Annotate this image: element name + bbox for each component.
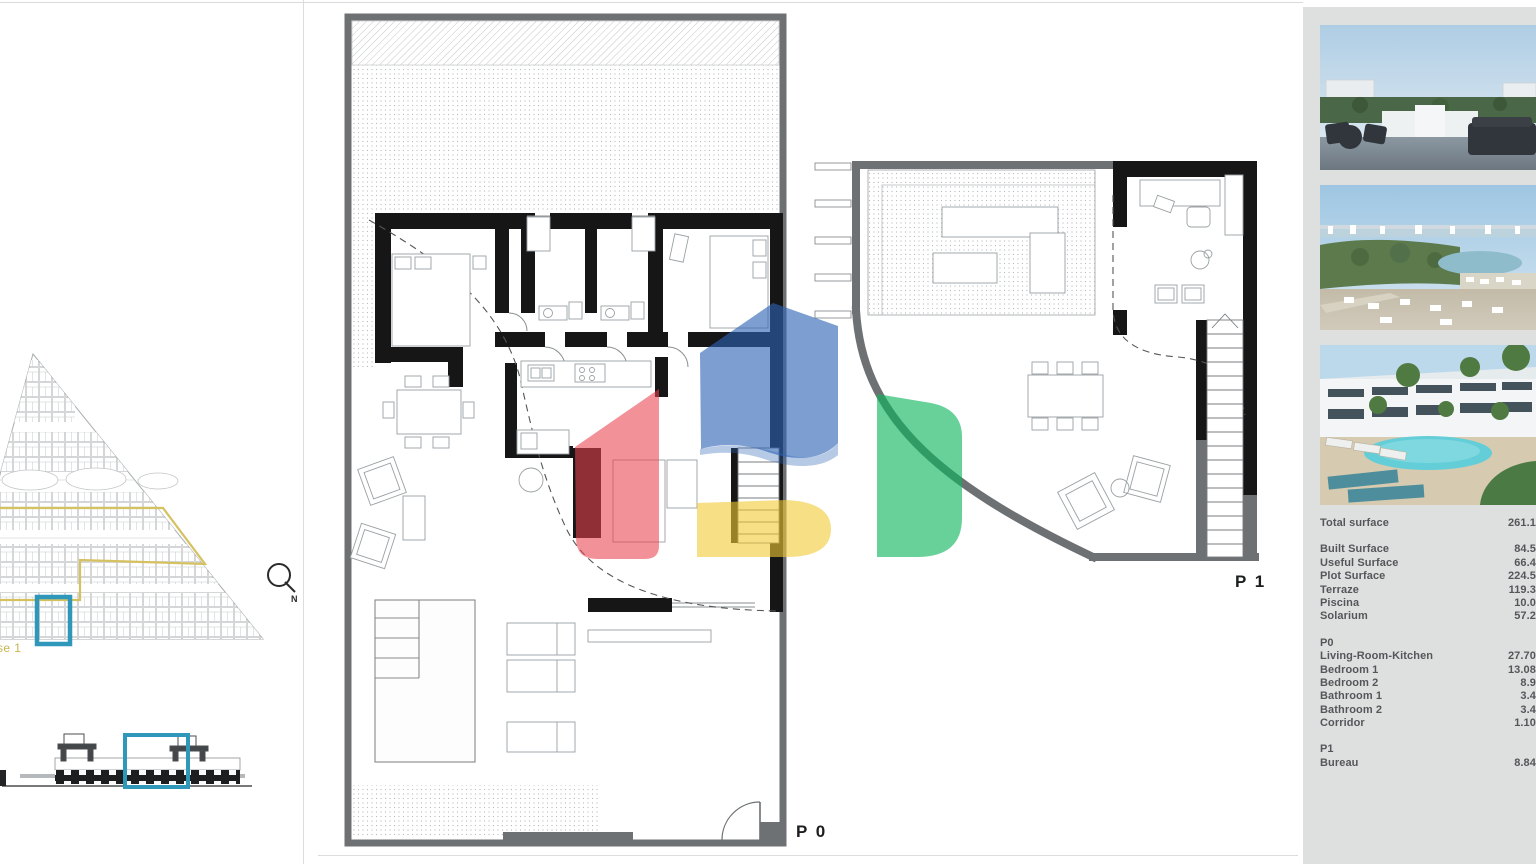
surface-row: Corridor 1.10 xyxy=(1320,717,1536,730)
plan-document-page: N se 1 xyxy=(0,0,1536,864)
surface-row-total: Total surface 261.1 xyxy=(1320,517,1536,530)
surface-row: Useful Surface 66.4 xyxy=(1320,557,1536,570)
p1-floor-label: P 1 xyxy=(1235,572,1266,592)
surface-row: Bedroom 1 13.08 xyxy=(1320,664,1536,677)
surface-row: Solarium 57.2 xyxy=(1320,610,1536,623)
p1-section-heading: P1 xyxy=(1320,743,1536,756)
floor-plan-p0 xyxy=(335,10,805,855)
floor-plan-p1 xyxy=(810,150,1275,600)
panel-top-gap xyxy=(1303,0,1536,7)
elevation-drawing xyxy=(0,722,305,807)
info-sidebar: Total surface 261.1 Built Surface 84.5 U… xyxy=(1303,0,1536,864)
surface-row: Bedroom 2 8.9 xyxy=(1320,677,1536,690)
north-label: N xyxy=(291,594,298,604)
pool-residences-photo xyxy=(1320,345,1536,505)
aerial-landscape-photo xyxy=(1320,185,1536,330)
surface-row: Living-Room-Kitchen 27.70 xyxy=(1320,650,1536,663)
p0-section-heading: P0 xyxy=(1320,637,1536,650)
surface-row: Bureau 8.84 xyxy=(1320,757,1536,770)
surface-row: Terraze 119.3 xyxy=(1320,584,1536,597)
p0-floor-label: P 0 xyxy=(796,822,827,842)
north-compass-icon: N xyxy=(268,564,298,604)
surface-row: Built Surface 84.5 xyxy=(1320,543,1536,556)
site-plan-drawing: N xyxy=(0,352,305,652)
surface-row: Bathroom 1 3.4 xyxy=(1320,690,1536,703)
surface-label: Total surface xyxy=(1320,517,1389,530)
surface-table: Total surface 261.1 Built Surface 84.5 U… xyxy=(1320,517,1536,770)
page-bottom-border xyxy=(318,855,1298,856)
surface-row: Plot Surface 224.5 xyxy=(1320,570,1536,583)
roof-terrace-photo xyxy=(1320,25,1536,170)
surface-row: Bathroom 2 3.4 xyxy=(1320,704,1536,717)
surface-row: Piscina 10.0 xyxy=(1320,597,1536,610)
phase-label: se 1 xyxy=(0,641,21,655)
surface-value: 261.1 xyxy=(1508,517,1536,530)
